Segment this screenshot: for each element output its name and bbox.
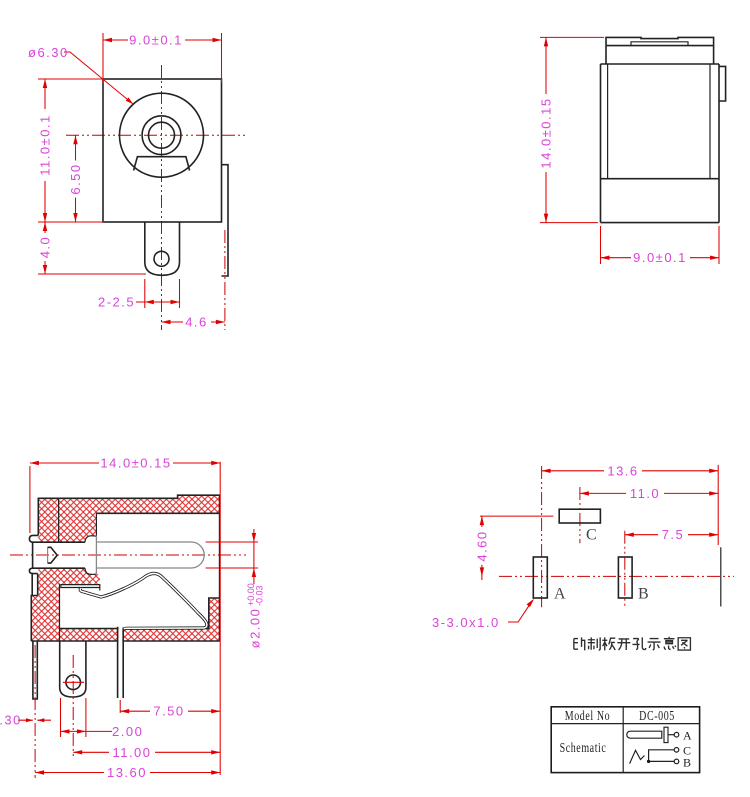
svg-text:11.0: 11.0 — [630, 486, 660, 501]
svg-text:2-2.5: 2-2.5 — [98, 295, 135, 310]
svg-text:14.0±0.15: 14.0±0.15 — [539, 97, 554, 168]
svg-text:6.50: 6.50 — [68, 163, 83, 194]
svg-text:4.0: 4.0 — [38, 236, 53, 259]
svg-text:Model No: Model No — [565, 707, 610, 723]
svg-text:13.6: 13.6 — [607, 463, 638, 478]
svg-text:14.0±0.15: 14.0±0.15 — [100, 456, 171, 471]
svg-text:3-3.0x1.0: 3-3.0x1.0 — [432, 615, 500, 630]
svg-text:9.0±0.1: 9.0±0.1 — [633, 250, 687, 265]
svg-text:Schematic: Schematic — [560, 739, 607, 755]
svg-text:7.50: 7.50 — [153, 704, 184, 719]
svg-text:DC-005: DC-005 — [639, 707, 675, 723]
svg-text:2.00: 2.00 — [112, 724, 143, 739]
svg-text:1.30: 1.30 — [0, 713, 22, 728]
svg-text:9.0±0.1: 9.0±0.1 — [129, 33, 183, 48]
svg-text:B: B — [638, 586, 649, 603]
svg-text:11.00: 11.00 — [112, 745, 151, 760]
svg-text:ø6.30: ø6.30 — [28, 45, 69, 60]
svg-text:A: A — [554, 586, 566, 603]
svg-text:-0.03: -0.03 — [255, 585, 265, 606]
svg-text:7.5: 7.5 — [662, 527, 685, 542]
svg-text:A: A — [683, 729, 692, 743]
svg-text:ø2.00: ø2.00 — [248, 608, 263, 649]
svg-text:B: B — [683, 755, 692, 769]
svg-text:13.60: 13.60 — [107, 765, 147, 780]
svg-text:4.6: 4.6 — [185, 315, 208, 330]
svg-text:11.0±0.1: 11.0±0.1 — [38, 114, 53, 176]
svg-text:C: C — [586, 527, 597, 544]
svg-text:4.60: 4.60 — [474, 530, 489, 561]
